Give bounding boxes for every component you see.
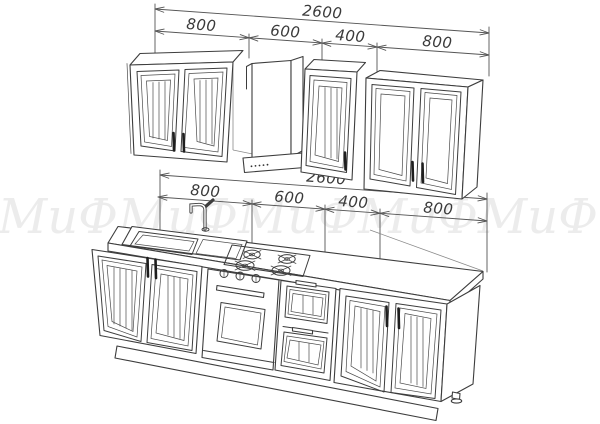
base-cabinet-800-right: [334, 286, 480, 402]
wall-cabinet-400: [301, 60, 366, 181]
adjustable-foot: [451, 392, 461, 403]
dim-mid-seg-4: 800: [423, 198, 454, 218]
watermark-text: МиФ: [0, 189, 118, 245]
dim-top-seg-3: 400: [335, 26, 366, 46]
oven: [202, 269, 279, 370]
kitchen-technical-drawing: МиФ МиФ МиФ МиФ МиФ 2600 800 600 400 800…: [0, 0, 600, 424]
drawer-unit-400: [275, 281, 336, 381]
door-handle: [345, 153, 346, 170]
dim-top-overall: 2600: [302, 2, 343, 23]
dim-mid-seg-1: 800: [190, 181, 221, 201]
dim-top-seg-1: 800: [186, 15, 217, 35]
wall-cabinet-800-lattice: [364, 71, 483, 200]
dim-mid-seg-3: 400: [338, 192, 369, 212]
dim-top-seg-2: 600: [270, 21, 301, 41]
range-hood: [243, 57, 311, 173]
dim-top-seg-4: 800: [422, 32, 453, 52]
wall-cabinet-800-left: [127, 51, 243, 163]
base-cabinet-sink-800: [92, 250, 202, 354]
dim-mid-seg-2: 600: [274, 187, 305, 207]
watermark-text: МиФ: [477, 189, 598, 245]
